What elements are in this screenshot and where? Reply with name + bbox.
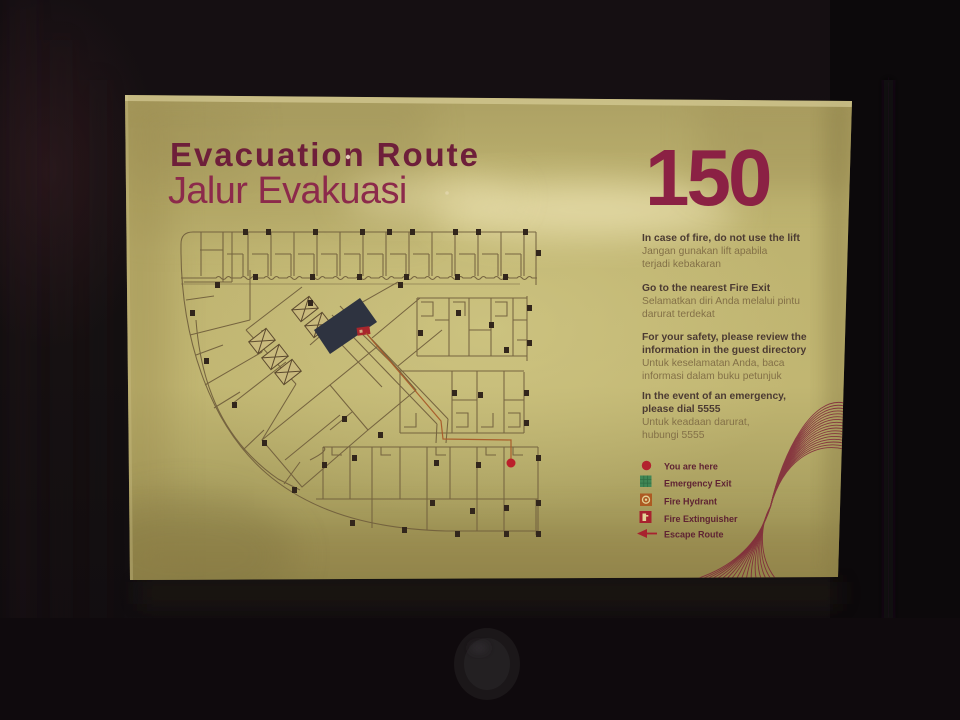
svg-text:Jalur Evakuasi: Jalur Evakuasi <box>168 170 407 212</box>
svg-text:You are here: You are here <box>664 462 718 472</box>
svg-text:Untuk keadaan darurat,: Untuk keadaan darurat, <box>642 417 750 428</box>
svg-text:Go to the nearest Fire Exit: Go to the nearest Fire Exit <box>642 283 771 294</box>
svg-text:informasi dalam buku petunjuk: informasi dalam buku petunjuk <box>642 371 783 382</box>
svg-text:Fire Hydrant: Fire Hydrant <box>664 497 717 507</box>
svg-text:Jangan gunakan lift apabila: Jangan gunakan lift apabila <box>642 246 768 257</box>
svg-text:darurat terdekat: darurat terdekat <box>642 309 715 320</box>
svg-text:Selamatkan diri Anda melalui p: Selamatkan diri Anda melalui pintu <box>642 296 800 307</box>
svg-text:In case of fire, do not use th: In case of fire, do not use the lift <box>642 233 800 244</box>
svg-text:hubungi 5555: hubungi 5555 <box>642 430 705 441</box>
svg-text:Fire Extinguisher: Fire Extinguisher <box>664 514 738 524</box>
svg-text:Escape Route: Escape Route <box>664 530 724 540</box>
svg-text:Evacuation Route: Evacuation Route <box>170 136 480 173</box>
svg-text:please dial 5555: please dial 5555 <box>642 404 721 415</box>
svg-text:Emergency Exit: Emergency Exit <box>664 479 732 489</box>
svg-text:terjadi kebakaran: terjadi kebakaran <box>642 259 721 270</box>
svg-text:For your safety, please review: For your safety, please review the <box>642 332 807 343</box>
svg-text:150: 150 <box>645 133 770 222</box>
svg-text:In the event of an emergency,: In the event of an emergency, <box>642 391 786 402</box>
svg-text:information in the guest direc: information in the guest directory <box>642 345 806 356</box>
svg-text:Untuk keselamatan Anda, baca: Untuk keselamatan Anda, baca <box>642 358 785 369</box>
